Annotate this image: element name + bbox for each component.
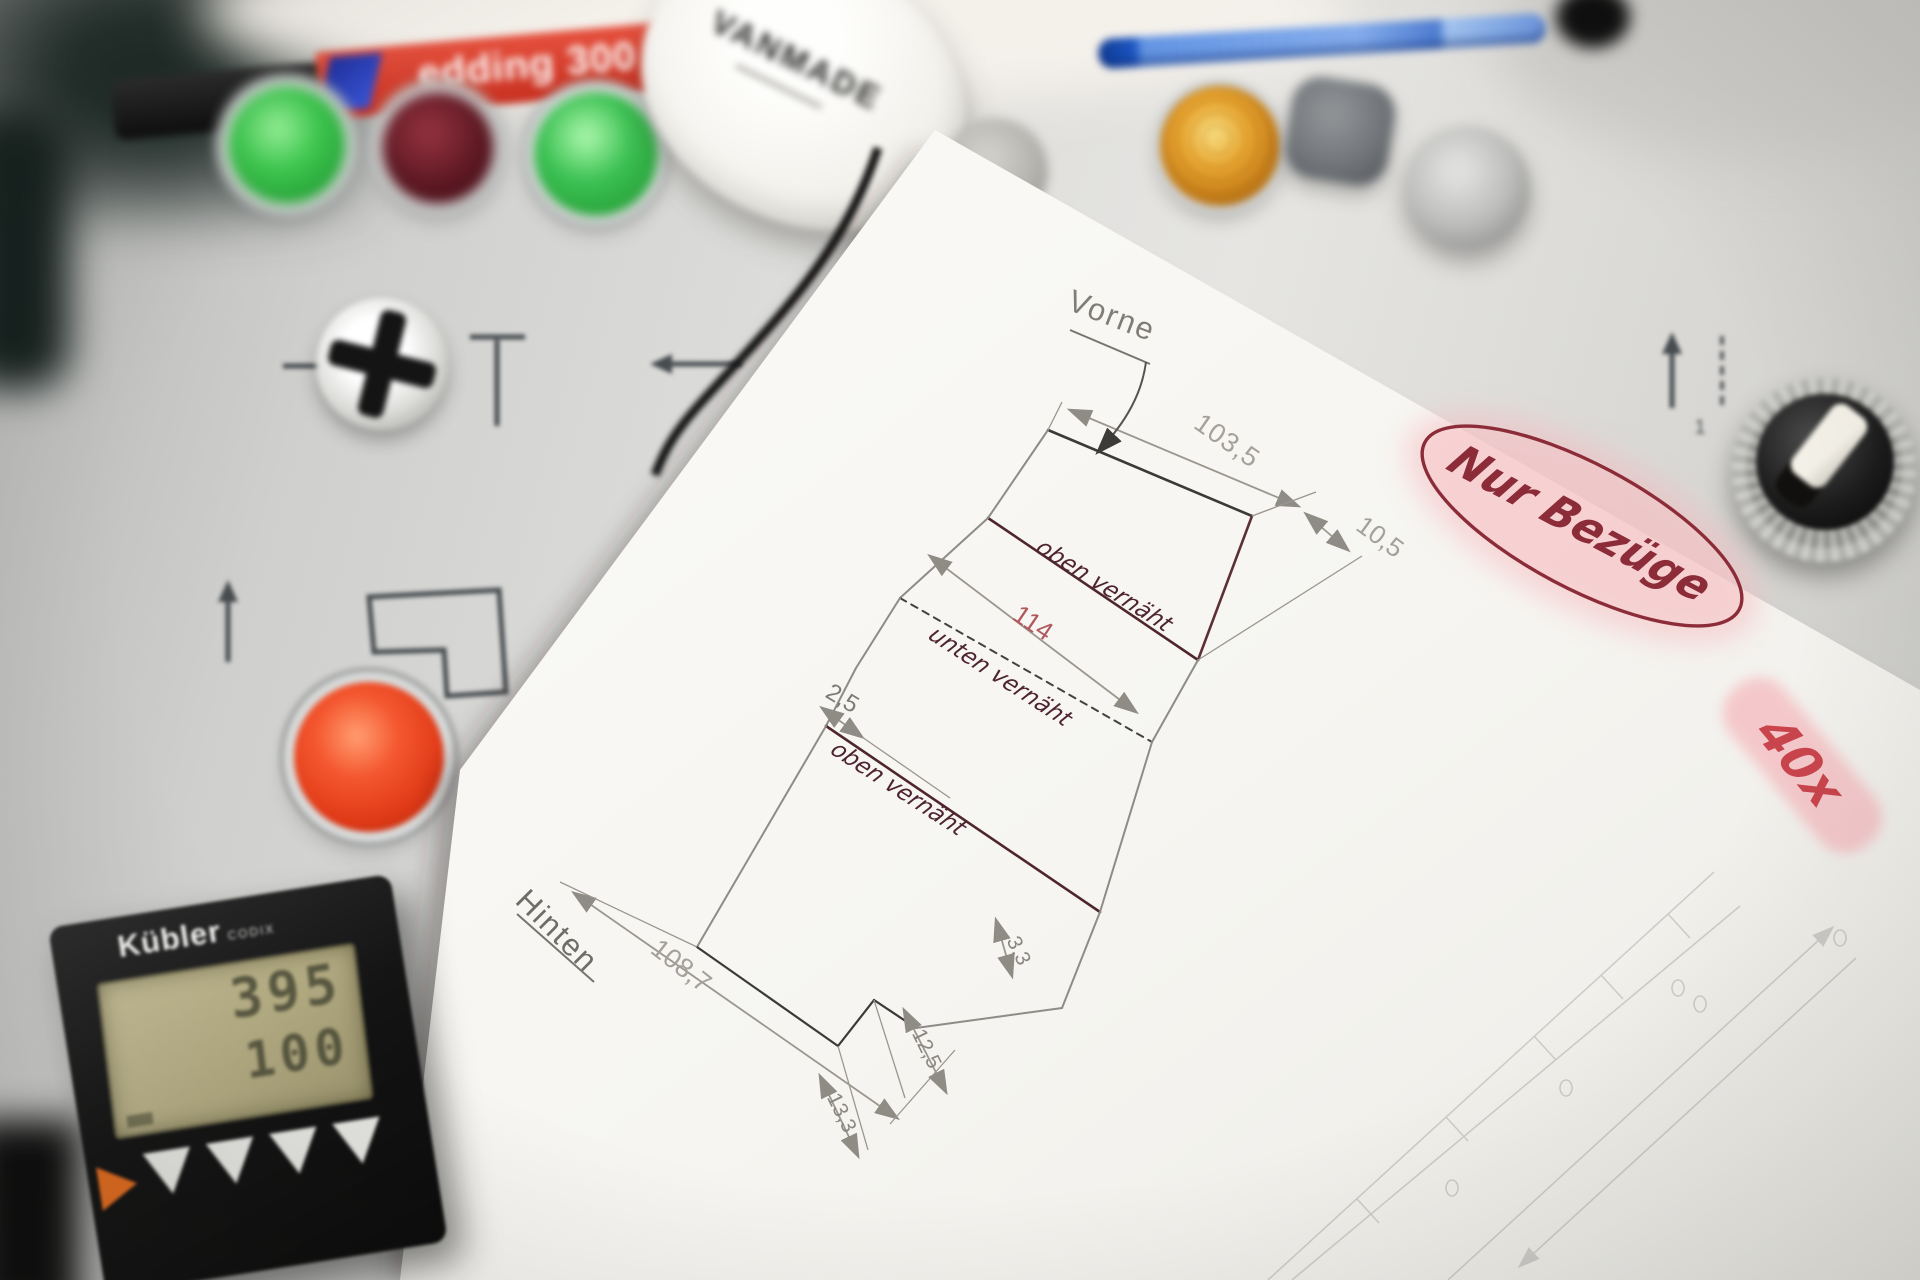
- dim-103-5: 103,5: [1188, 407, 1265, 474]
- counter-lcd: 395 100: [96, 942, 374, 1140]
- handwriting-unten-vernaeht: unten vernäht: [923, 623, 1078, 732]
- counter-key-icon: [143, 1146, 197, 1197]
- label-hinten: Hinten: [508, 882, 605, 979]
- lcd-status-glyph: [126, 1112, 153, 1128]
- counter-orange-arrow-icon: [96, 1161, 140, 1210]
- label-vorne: Vorne: [1063, 283, 1161, 349]
- kuebler-counter: KüblerCODIX 395 100: [48, 874, 448, 1280]
- counter-key-icon: [206, 1136, 260, 1187]
- handwriting-oben-vernaeht-2: oben vernäht: [825, 737, 972, 841]
- dim-108-7: 108,7: [645, 933, 717, 999]
- note-40x: 40x: [1743, 707, 1857, 818]
- counter-brand-text: Kübler: [115, 913, 223, 964]
- dim-2-5: 2,5: [820, 678, 863, 719]
- workshop-photo: 1 edding 300 VANMADE: [0, 0, 1920, 1280]
- dim-13-3: 13,3: [821, 1089, 860, 1136]
- dim-10-5: 10,5: [1350, 510, 1409, 565]
- counter-value-bottom: 100: [242, 1017, 353, 1091]
- counter-key-icon: [269, 1126, 323, 1177]
- counter-key-icon: [332, 1116, 386, 1167]
- dim-3-3: 3,3: [1001, 933, 1035, 970]
- counter-brand: KüblerCODIX: [115, 905, 277, 965]
- dim-12-5: 12,5: [906, 1025, 945, 1072]
- dim-114: 114: [1007, 599, 1059, 648]
- note-nur-bezuege: Nur Bezüge: [1437, 436, 1722, 611]
- counter-series-text: CODIX: [227, 922, 277, 943]
